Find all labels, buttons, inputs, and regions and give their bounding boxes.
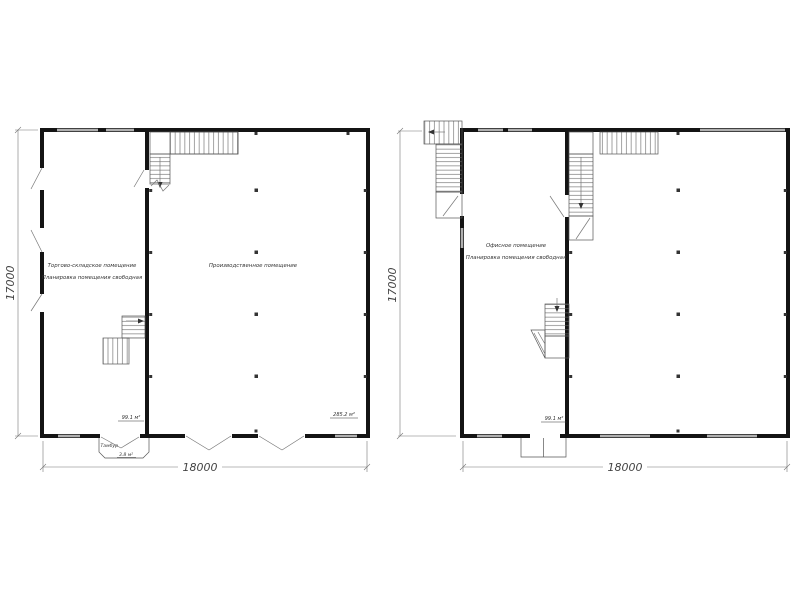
- window: [707, 435, 757, 438]
- wall-partition-seg: [145, 188, 149, 438]
- window: [600, 435, 650, 438]
- column: [677, 189, 681, 193]
- wall-pilaster: [364, 189, 367, 192]
- column: [677, 313, 681, 317]
- wall-left-seg: [460, 216, 464, 438]
- plan-warehouse-walls: [40, 128, 370, 438]
- wall-pilaster: [569, 313, 572, 316]
- wall-pilaster: [149, 251, 152, 254]
- wall-pilaster: [677, 132, 680, 135]
- room-label: Торгово-складское помещение: [48, 263, 137, 269]
- wall-pilaster: [784, 375, 787, 378]
- wall-right: [366, 128, 370, 438]
- room-label: Производственное помещение: [209, 263, 298, 269]
- window: [508, 129, 532, 132]
- plan-office-stair-external: [424, 121, 462, 218]
- plan-warehouse-vestibule: Тамбур 3.8 м²: [99, 438, 149, 458]
- wall-pilaster: [364, 375, 367, 378]
- column: [677, 251, 681, 255]
- door-swing: [576, 218, 590, 239]
- window: [461, 228, 464, 248]
- column: [255, 375, 259, 379]
- plan-warehouse-columns: [149, 132, 367, 433]
- wall-left-seg: [40, 252, 44, 294]
- stair-flight-horizontal: [103, 338, 129, 364]
- stair-winder: [531, 330, 545, 358]
- room-label: Офисное помещение: [486, 243, 547, 249]
- plan-office-stair-mid: [531, 298, 569, 358]
- wall-pilaster: [149, 375, 152, 378]
- door-swing: [443, 196, 458, 216]
- door-swing: [134, 170, 144, 187]
- floor-plans-canvas: Тамбур 3.8 м² Торгово-складское помещени…: [0, 0, 800, 600]
- dimension-width-value: 18000: [608, 461, 643, 474]
- plan-office-columns: [569, 132, 787, 433]
- wall-pilaster: [364, 251, 367, 254]
- vestibule-area: 3.8 м²: [119, 452, 133, 458]
- wall-pilaster: [149, 313, 152, 316]
- wall-pilaster: [364, 313, 367, 316]
- wall-pilaster: [569, 251, 572, 254]
- plan-warehouse: Тамбур 3.8 м² Торгово-складское помещени…: [4, 127, 370, 474]
- window: [57, 129, 98, 132]
- plan-warehouse-stair-mid: [103, 316, 145, 364]
- stair-flight-horizontal: [170, 132, 238, 154]
- room-area: 99.1 м²: [545, 416, 564, 422]
- dimension-width-value: 18000: [183, 461, 218, 474]
- wall-bottom-seg: [232, 434, 258, 438]
- door-swing: [31, 168, 42, 189]
- wall-pilaster: [677, 430, 680, 433]
- plan-warehouse-dimensions: 17000 18000: [4, 127, 370, 474]
- wall-pilaster: [784, 313, 787, 316]
- wall-left-seg: [40, 312, 44, 438]
- wall-partition-seg: [565, 128, 569, 195]
- floor-plans-drawing: Тамбур 3.8 м² Торгово-складское помещени…: [0, 0, 800, 600]
- wall-pilaster: [569, 375, 572, 378]
- room-area: 285.2 м²: [333, 412, 355, 418]
- wall-right: [786, 128, 790, 438]
- window: [335, 435, 357, 438]
- gate-swing: [259, 436, 304, 450]
- plan-office-porch: [521, 438, 566, 457]
- door-swing: [31, 294, 42, 311]
- window: [700, 129, 785, 132]
- column: [255, 189, 259, 193]
- dimension-height-value: 17000: [386, 268, 399, 303]
- dimension-height-value: 17000: [4, 266, 17, 301]
- window: [58, 435, 80, 438]
- room-label: Планировка помещения свободная: [42, 275, 143, 281]
- wall-left-seg: [40, 190, 44, 228]
- stair-landing: [436, 192, 462, 218]
- wall-pilaster: [255, 132, 258, 135]
- plan-office: Офисное помещение Планировка помещения с…: [386, 121, 790, 474]
- plan-warehouse-stair-top: [150, 132, 238, 191]
- window: [478, 129, 503, 132]
- wall-pilaster: [784, 189, 787, 192]
- wall-left-seg: [40, 128, 44, 168]
- wall-pilaster: [784, 251, 787, 254]
- stair-compartment: [569, 216, 593, 240]
- stair-flight-vertical: [122, 316, 145, 338]
- column: [677, 375, 681, 379]
- dimension-height-lines: [15, 130, 38, 436]
- window: [477, 435, 502, 438]
- door-swing: [31, 230, 42, 252]
- plan-warehouse-windows: [57, 129, 357, 438]
- stair-winder-steps: [534, 332, 545, 354]
- stair-flight-horizontal: [600, 132, 658, 154]
- wall-pilaster: [149, 189, 152, 192]
- gate-swing: [186, 436, 231, 450]
- plan-office-windows: [461, 129, 785, 438]
- wall-pilaster: [255, 430, 258, 433]
- plan-warehouse-labels: Торгово-складское помещение Планировка п…: [42, 263, 358, 421]
- stair-flight-vertical: [436, 144, 462, 192]
- plan-warehouse-doors: [31, 168, 304, 450]
- column: [255, 313, 259, 317]
- room-label: Планировка помещения свободная: [466, 255, 567, 261]
- column: [255, 251, 259, 255]
- room-area: 99.1 м²: [122, 415, 141, 421]
- plan-office-walls: [460, 128, 790, 438]
- vestibule-label: Тамбур: [101, 443, 119, 449]
- wall-pilaster: [347, 132, 350, 135]
- wall-partition-seg: [145, 128, 149, 170]
- stair-landing: [569, 132, 593, 154]
- window: [106, 129, 134, 132]
- door-swing: [550, 196, 564, 217]
